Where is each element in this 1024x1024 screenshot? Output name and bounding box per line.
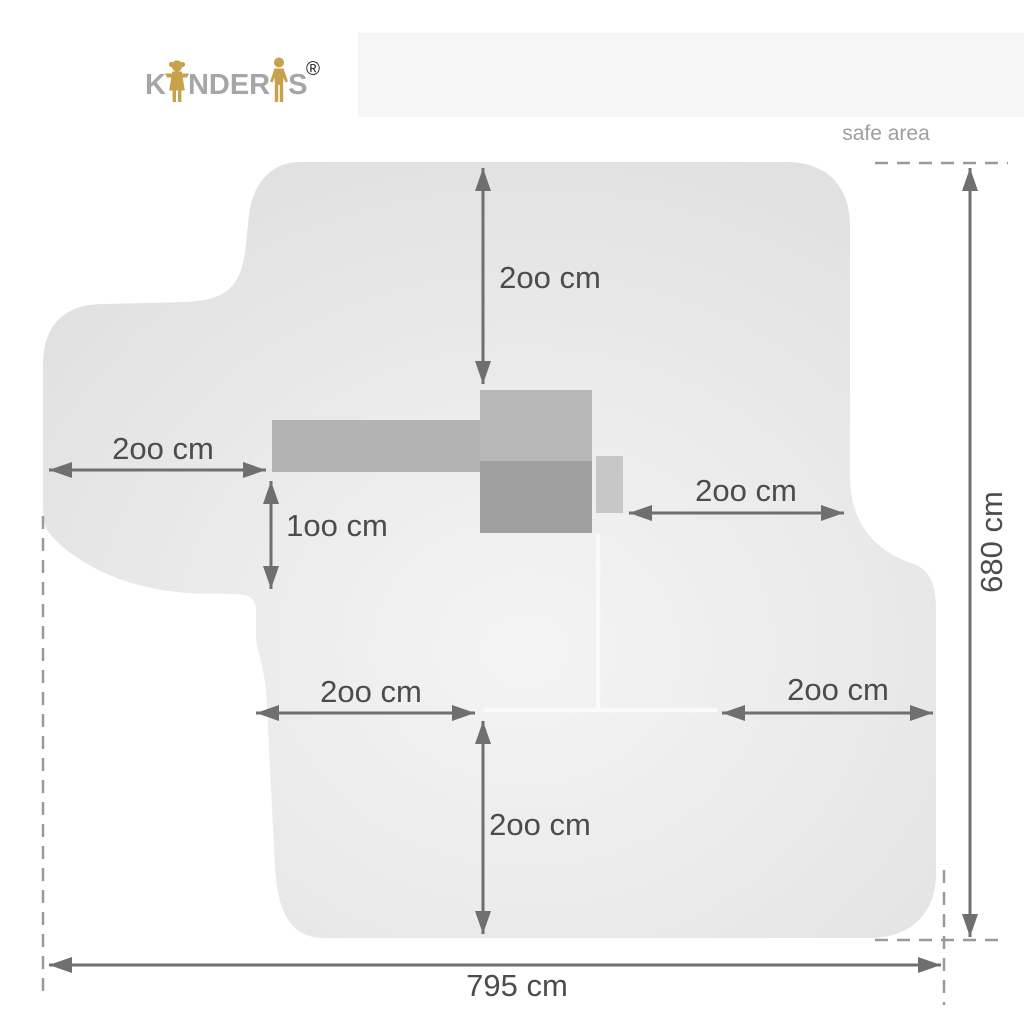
equipment-upper-block (480, 390, 592, 461)
equipment-side-block (596, 456, 623, 513)
dim-label-bottom-right: 2oo cm (787, 672, 889, 708)
dim-label-bottom-center: 2oo cm (489, 807, 591, 843)
dim-label-total-height: 680 cm (974, 491, 1010, 593)
dim-label-top: 2oo cm (499, 260, 601, 296)
safe-area-diagram-page: K NDER S ® safe (0, 0, 1024, 1024)
equipment-bar (272, 420, 480, 472)
safe-area-diagram (0, 0, 1024, 1024)
equipment-lower-block (480, 461, 592, 533)
dim-label-total-width: 795 cm (466, 968, 568, 1004)
dim-label-left-drop: 1oo cm (286, 508, 388, 544)
dim-label-bottom-left: 2oo cm (320, 674, 422, 710)
dim-label-right: 2oo cm (695, 473, 797, 509)
dim-label-left: 2oo cm (112, 431, 214, 467)
